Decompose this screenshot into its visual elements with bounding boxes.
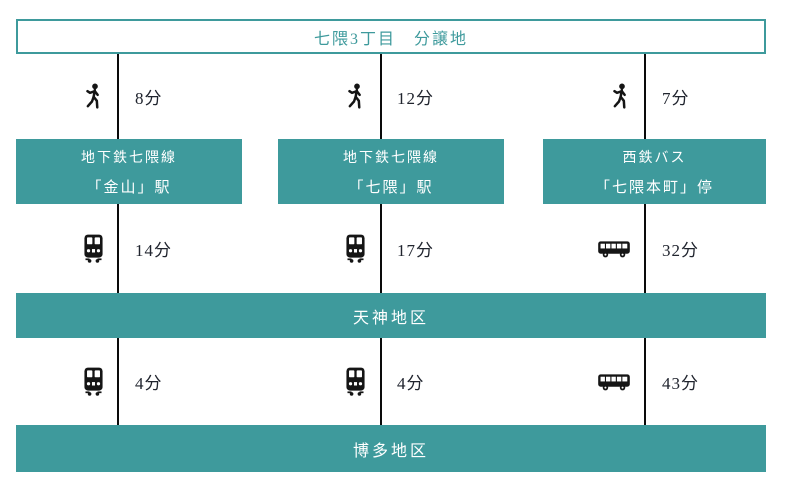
train-icon bbox=[16, 234, 118, 263]
destination-bar-tenjin: 天神地区 bbox=[16, 293, 766, 338]
station-line-label: 西鉄バス bbox=[623, 147, 687, 167]
source-title-box: 七隈3丁目 分譲地 bbox=[16, 19, 766, 54]
station-name-label: 「七隈本町」停 bbox=[595, 176, 714, 197]
ride-row-cell: 4分 bbox=[16, 338, 242, 425]
station-name-label: 「七隈」駅 bbox=[348, 176, 433, 197]
ride-time-label: 17分 bbox=[380, 236, 434, 261]
walk-time-label: 12分 bbox=[380, 84, 434, 109]
ride-time-label: 4分 bbox=[380, 369, 425, 394]
station-box: 西鉄バス 「七隈本町」停 bbox=[543, 139, 766, 204]
bus-icon bbox=[543, 372, 645, 392]
walk-row-cell: 12分 bbox=[278, 53, 504, 139]
walk-row-cell: 7分 bbox=[543, 53, 766, 139]
ride-row-cell: 32分 bbox=[543, 204, 766, 293]
walk-row-cell: 8分 bbox=[16, 53, 242, 139]
train-icon bbox=[278, 234, 380, 263]
station-line-label: 地下鉄七隈線 bbox=[81, 147, 177, 167]
train-icon bbox=[16, 367, 118, 396]
ride-time-label: 4分 bbox=[118, 369, 163, 394]
walk-icon bbox=[543, 81, 645, 111]
ride-row-cell: 17分 bbox=[278, 204, 504, 293]
ride-row-cell: 43分 bbox=[543, 338, 766, 425]
bus-icon bbox=[543, 239, 645, 259]
destination-label: 天神地区 bbox=[353, 304, 429, 328]
station-line-label: 地下鉄七隈線 bbox=[343, 147, 439, 167]
walk-time-label: 8分 bbox=[118, 84, 163, 109]
station-box: 地下鉄七隈線 「七隈」駅 bbox=[278, 139, 504, 204]
station-name-label: 「金山」駅 bbox=[86, 176, 171, 197]
ride-time-label: 32分 bbox=[645, 236, 699, 261]
train-icon bbox=[278, 367, 380, 396]
transit-access-diagram: 七隈3丁目 分譲地 8分 12分 7分 地下鉄七隈線 「金山」駅 地下鉄七隈線 … bbox=[0, 0, 792, 488]
station-box: 地下鉄七隈線 「金山」駅 bbox=[16, 139, 242, 204]
walk-time-label: 7分 bbox=[645, 84, 690, 109]
walk-icon bbox=[278, 81, 380, 111]
ride-time-label: 14分 bbox=[118, 236, 172, 261]
ride-row-cell: 14分 bbox=[16, 204, 242, 293]
source-title: 七隈3丁目 分譲地 bbox=[314, 25, 468, 49]
walk-icon bbox=[16, 81, 118, 111]
destination-bar-hakata: 博多地区 bbox=[16, 425, 766, 472]
ride-row-cell: 4分 bbox=[278, 338, 504, 425]
ride-time-label: 43分 bbox=[645, 369, 699, 394]
destination-label: 博多地区 bbox=[353, 437, 429, 461]
